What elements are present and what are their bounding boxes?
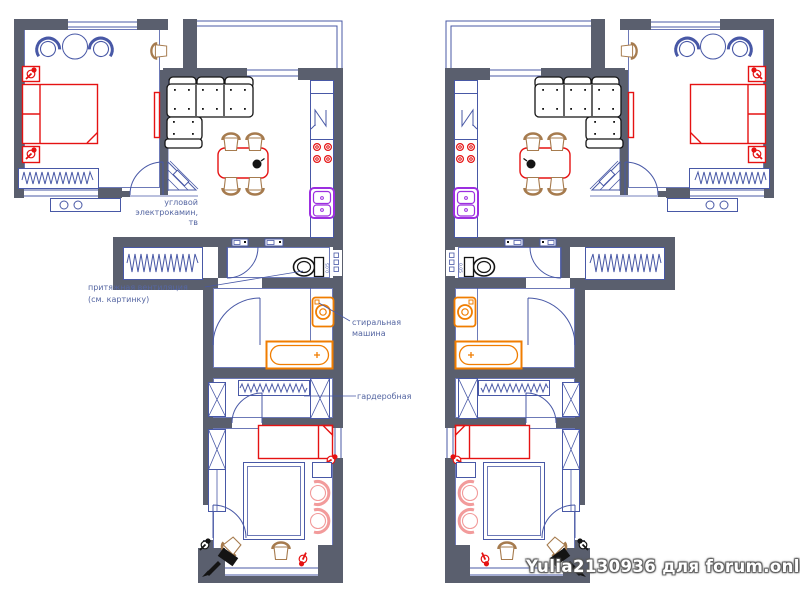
chair xyxy=(273,543,290,560)
wardrobe-door xyxy=(232,393,262,423)
wc-door xyxy=(227,247,258,278)
bedroom2-furniture xyxy=(200,426,338,578)
washing-machine-label-line2: машина xyxy=(352,329,386,338)
dining-chair xyxy=(247,178,264,195)
dining-chair xyxy=(223,134,240,151)
corner-fireplace-tv xyxy=(168,161,198,190)
armchair xyxy=(88,35,116,60)
lamp-symbol xyxy=(296,553,310,568)
desk-chair xyxy=(151,43,166,58)
fireplace-label-line1: угловой xyxy=(164,198,198,207)
toilet-tank-label-left: 0.05 xyxy=(325,263,331,273)
bedroom1-door xyxy=(130,162,163,195)
double-bed xyxy=(23,85,98,144)
nightstand xyxy=(313,463,332,478)
exterior-vent-box xyxy=(51,199,121,212)
rug xyxy=(244,463,305,540)
single-bed xyxy=(259,426,333,459)
dining-chair xyxy=(223,178,240,195)
toilet xyxy=(294,258,324,277)
dining-chair xyxy=(247,134,264,151)
closet-column-left xyxy=(209,430,226,512)
fireplace-label-line2: электрокамин, xyxy=(135,208,198,217)
apartment-plan-mirrored xyxy=(445,19,774,583)
floor-plan-image: угловой электрокамин, тв притяжная венти… xyxy=(0,0,800,596)
bathroom-fixtures xyxy=(267,298,334,369)
living-room-furniture xyxy=(165,77,268,195)
armchair xyxy=(311,482,329,505)
bathroom-door xyxy=(213,298,260,345)
ventilation-label-line2: (см. картинку) xyxy=(88,295,149,304)
washing-machine xyxy=(313,298,334,327)
kitchen-fixtures xyxy=(310,81,334,238)
double-sink xyxy=(310,188,334,218)
wardrobe-fixtures xyxy=(209,379,330,419)
washing-machine-label-line1: стиральная xyxy=(352,318,401,327)
floor-plans-svg: угловой электрокамин, тв притяжная венти… xyxy=(0,0,800,596)
armchair xyxy=(311,510,329,533)
round-table xyxy=(63,34,88,59)
wc-fixtures xyxy=(294,258,324,277)
tv-panel xyxy=(155,93,160,138)
wardrobe-label: гардеробная xyxy=(357,392,412,401)
armchair xyxy=(34,35,62,60)
fireplace-label-line3: тв xyxy=(189,218,199,227)
bedroom1-furniture xyxy=(23,34,167,163)
kitchen-sink-box xyxy=(311,94,334,140)
toilet-tank-label-right: 0.05 xyxy=(457,263,463,273)
apartment-plan xyxy=(14,19,343,583)
bathtub xyxy=(267,342,333,369)
ventilation-label-line1: притяжная вентиляция xyxy=(88,283,188,292)
watermark: Yulia2130936 для forum.onliner.by xyxy=(526,557,800,576)
